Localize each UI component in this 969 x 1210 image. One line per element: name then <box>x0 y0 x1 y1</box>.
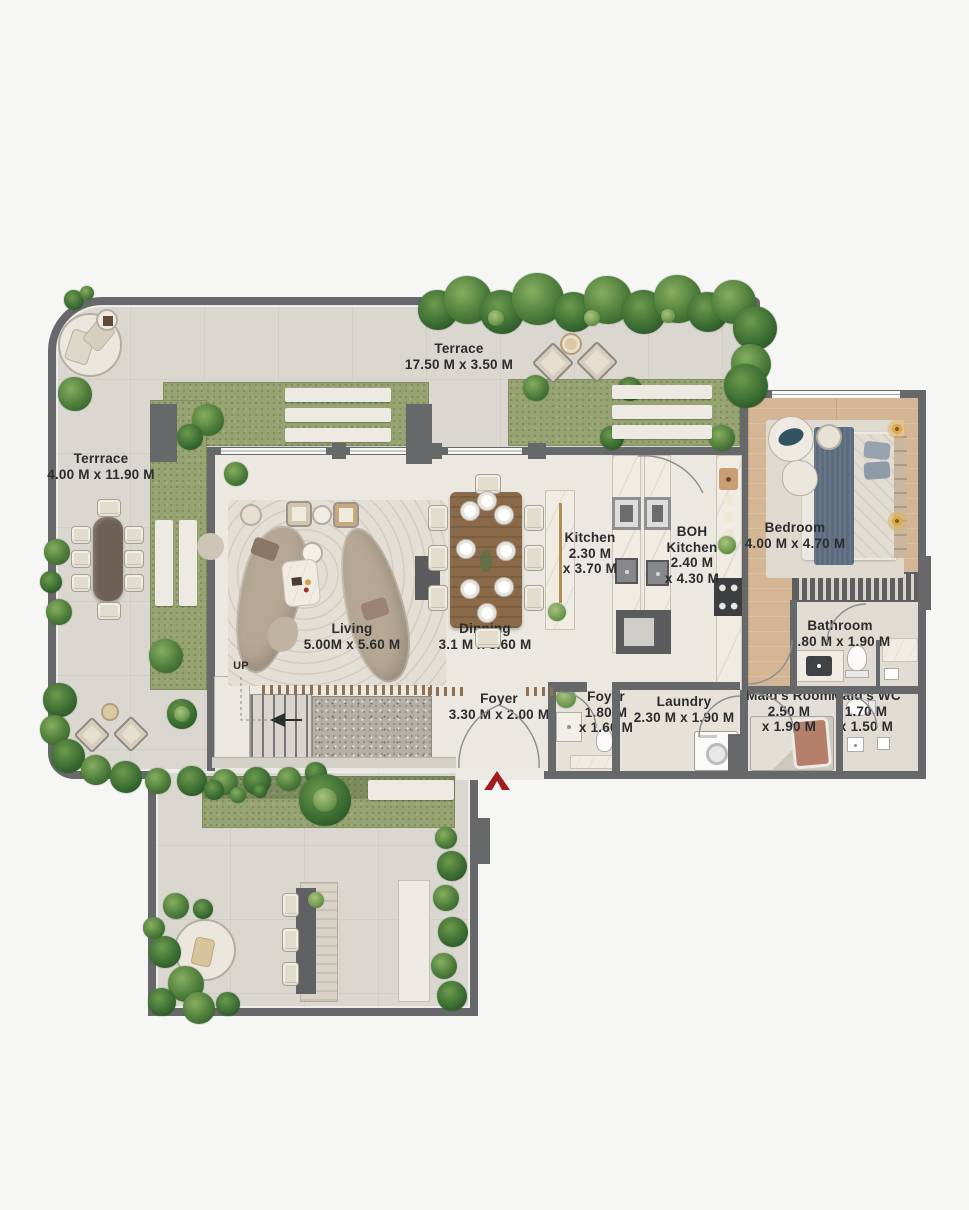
plate <box>477 603 497 623</box>
cutting-board <box>719 468 738 490</box>
room-label-terrace-top: Terrace 17.50 M x 3.50 M <box>405 341 513 372</box>
tree-icon <box>437 981 467 1011</box>
wall-segment <box>620 682 740 690</box>
armchair <box>333 502 359 528</box>
chair <box>71 526 91 544</box>
room-dims: x 4.30 M <box>665 571 719 587</box>
bathroom-vanity <box>794 650 844 682</box>
bedroom-side-table <box>816 424 842 450</box>
chair <box>71 550 91 568</box>
tree-icon <box>433 885 459 911</box>
room-name: Terrace <box>405 341 513 357</box>
tree-icon <box>584 310 600 326</box>
stair-guide <box>214 676 250 760</box>
stairs-up-text: UP <box>233 660 249 673</box>
tree-icon <box>204 780 224 800</box>
paver <box>285 388 391 402</box>
tree-icon <box>193 899 213 919</box>
tree-icon <box>44 539 70 565</box>
hallway-floor <box>748 600 792 692</box>
room-label-laundry: Laundry 2.30 M x 1.90 M <box>634 694 735 725</box>
gravel-bed <box>312 696 432 758</box>
paver <box>285 428 391 442</box>
side-table <box>312 505 332 525</box>
table-runner <box>480 550 492 572</box>
room-name: Living <box>304 621 401 637</box>
tree-icon <box>43 683 77 717</box>
tree-icon <box>488 310 504 326</box>
chair <box>475 628 501 648</box>
room-dims: 2.50 M <box>746 704 832 720</box>
tree-icon <box>177 766 207 796</box>
wood-slats <box>428 687 468 696</box>
bedroom-ottoman <box>782 460 818 496</box>
wall-segment <box>836 694 843 771</box>
tree-icon <box>224 462 248 486</box>
room-dims: 17.50 M x 3.50 M <box>405 357 513 373</box>
chair <box>97 602 121 620</box>
wall-segment <box>728 734 740 771</box>
tree-icon <box>216 992 240 1016</box>
room-label-terrace-left: Terrrace 4.00 M x 11.90 M <box>47 451 155 482</box>
wall-segment <box>790 600 797 690</box>
floor-plan: Terrace 17.50 M x 3.50 M Terrrace 4.00 M… <box>0 0 969 1210</box>
bedroom-chair <box>768 416 814 462</box>
paver <box>285 408 391 422</box>
wall-segment <box>548 692 556 771</box>
ceiling-lamp <box>884 416 910 442</box>
room-dims: x 1.60 M <box>579 720 633 736</box>
wall-segment <box>748 686 918 694</box>
paver <box>179 520 197 606</box>
bathroom-toilet-tank <box>845 670 869 678</box>
staircase <box>250 694 312 758</box>
paver <box>612 405 712 419</box>
boh-jars <box>721 495 737 539</box>
kitchen-cabinet-1 <box>612 497 641 530</box>
tree-icon <box>174 706 190 722</box>
round-table <box>101 703 119 721</box>
window <box>221 448 326 454</box>
wall-segment <box>470 818 490 864</box>
wood-slats <box>262 685 432 695</box>
table-plant <box>308 892 324 908</box>
wall-segment <box>918 556 931 610</box>
wc-fixture <box>877 737 890 750</box>
tree-icon <box>313 788 337 812</box>
wall-segment <box>332 443 346 459</box>
chair <box>282 928 299 952</box>
stairs-up-label: UP <box>233 660 249 673</box>
tree-icon <box>51 739 85 773</box>
room-dims: 5.00M x 5.60 M <box>304 637 401 653</box>
paver <box>368 780 454 800</box>
tree-icon <box>724 364 768 408</box>
tree-icon <box>437 851 467 881</box>
wall-segment <box>150 404 177 462</box>
tree-icon <box>435 827 457 849</box>
room-label-foyer2: Foyer 1.80 M x 1.60 M <box>579 689 633 736</box>
tree-icon <box>80 286 94 300</box>
wood-slats <box>526 687 554 696</box>
chair <box>124 550 144 568</box>
wall-segment <box>612 682 620 771</box>
tree-icon <box>149 936 181 968</box>
chair <box>282 962 299 986</box>
tree-icon <box>81 755 111 785</box>
plate <box>456 539 476 559</box>
boh-counter <box>716 455 742 690</box>
tree-icon <box>230 787 246 803</box>
room-dims: 3.30 M x 2.00 M <box>449 707 550 723</box>
room-dims: 2.40 M <box>665 555 719 571</box>
bed-pillow <box>863 441 891 461</box>
tree-icon <box>163 893 189 919</box>
plate <box>477 491 497 511</box>
entry-threshold <box>456 769 544 780</box>
tree-icon <box>718 536 736 554</box>
chair <box>428 585 448 611</box>
tree-icon <box>523 375 549 401</box>
headboard <box>894 436 907 558</box>
pouf <box>197 533 224 560</box>
room-label-living: Living 5.00M x 5.60 M <box>304 621 401 652</box>
tree-icon <box>709 425 735 451</box>
chair <box>71 574 91 592</box>
room-dims: x 1.90 M <box>746 719 832 735</box>
wc-sink <box>847 737 864 752</box>
chair <box>524 505 544 531</box>
paver <box>612 385 712 399</box>
tree-icon <box>177 424 203 450</box>
room-dims: 1.80 M <box>579 705 633 721</box>
bed-pillow <box>863 461 890 480</box>
paver <box>612 425 712 439</box>
tree-icon <box>733 306 777 350</box>
outdoor-bench <box>398 880 430 1002</box>
room-dims: 4.00 M x 11.90 M <box>47 467 155 483</box>
powder-marble-counter <box>570 755 616 769</box>
room-name: Kitchen <box>563 530 617 546</box>
chair <box>124 574 144 592</box>
island-board <box>559 503 562 603</box>
room-dims: 2.30 M <box>563 546 617 562</box>
tree-icon <box>40 571 62 593</box>
tree-icon <box>110 761 142 793</box>
tree-icon <box>46 599 72 625</box>
chair <box>97 499 121 517</box>
outdoor-dining-table <box>93 517 123 601</box>
plate <box>494 577 514 597</box>
wall-segment <box>876 640 880 690</box>
armchair <box>286 501 312 527</box>
plate <box>496 541 516 561</box>
plate <box>494 505 514 525</box>
bedroom-window <box>772 391 900 398</box>
kitchen-oven <box>616 610 671 654</box>
room-dims: 4.00 M x 4.70 M <box>745 536 846 552</box>
room-label-bedroom: Bedroom 4.00 M x 4.70 M <box>745 520 846 551</box>
room-label-boh-kitchen: BOH Kitchen 2.40 M x 4.30 M <box>665 524 719 587</box>
chair <box>428 545 448 571</box>
wall-segment <box>424 443 442 459</box>
room-dims: 2.30 M x 1.90 M <box>634 710 735 726</box>
chair <box>524 585 544 611</box>
tree-icon <box>277 767 301 791</box>
tree-icon <box>661 309 675 323</box>
ceiling-lamp <box>884 508 910 534</box>
tree-icon <box>253 784 267 798</box>
tree-icon <box>143 917 165 939</box>
coffee-table <box>281 558 322 608</box>
chair <box>524 545 544 571</box>
threshold <box>212 757 456 768</box>
room-dims: x 3.70 M <box>563 561 617 577</box>
kitchen-sink-1 <box>615 558 638 584</box>
chair <box>428 505 448 531</box>
room-label-maids-room: Maid’s Room 2.50 M x 1.90 M <box>746 688 832 735</box>
chair <box>282 893 299 917</box>
round-table <box>96 309 118 331</box>
chair <box>124 526 144 544</box>
room-label-kitchen: Kitchen 2.30 M x 3.70 M <box>563 530 617 577</box>
side-table <box>240 504 262 526</box>
bathroom-sink <box>884 668 899 680</box>
room-name: Laundry <box>634 694 735 710</box>
room-name: BOH <box>665 524 719 540</box>
tree-icon <box>438 917 468 947</box>
tree-icon <box>148 988 176 1016</box>
tree-icon <box>183 992 215 1024</box>
paver <box>155 520 173 606</box>
tree-icon <box>548 603 566 621</box>
wall-segment <box>528 443 546 459</box>
tree-icon <box>149 639 183 673</box>
plate <box>460 579 480 599</box>
room-name: Bedroom <box>745 520 846 536</box>
window <box>448 448 522 454</box>
tree-icon <box>431 953 457 979</box>
room-name: Kitchen <box>665 540 719 556</box>
room-name: Terrrace <box>47 451 155 467</box>
room-name: Bathroom <box>790 618 891 634</box>
room-name: Foyer <box>579 689 633 705</box>
tree-icon <box>145 768 171 794</box>
tree-icon <box>58 377 92 411</box>
